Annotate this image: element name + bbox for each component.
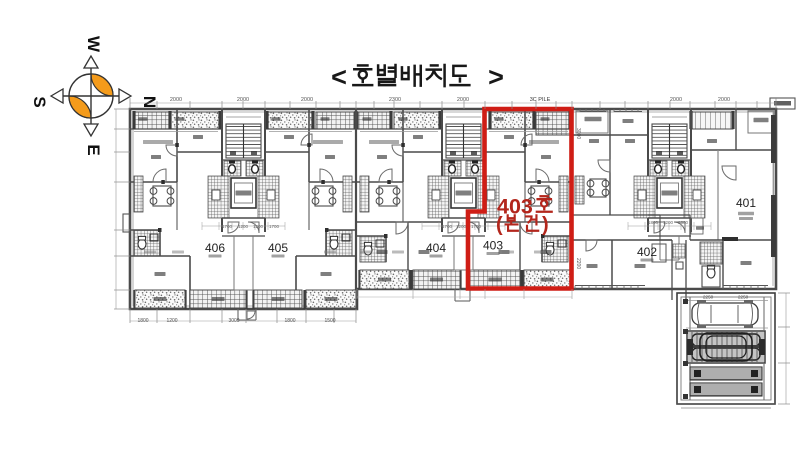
svg-text:402: 402: [637, 245, 657, 259]
svg-text:1500: 1500: [324, 318, 335, 324]
svg-text:1200: 1200: [238, 224, 249, 229]
svg-text:2000: 2000: [237, 97, 249, 103]
svg-text:): ): [542, 214, 549, 236]
svg-text:406: 406: [205, 241, 225, 255]
svg-text:404: 404: [426, 241, 446, 255]
svg-text:1800: 1800: [648, 220, 659, 225]
svg-text:405: 405: [268, 241, 288, 255]
svg-text:1700: 1700: [471, 224, 482, 229]
svg-text:N: N: [140, 96, 159, 108]
svg-text:>: >: [488, 62, 504, 92]
svg-text:1800: 1800: [137, 318, 148, 324]
svg-text:1700: 1700: [222, 224, 233, 229]
svg-text:2300: 2300: [389, 97, 401, 103]
svg-text:2000: 2000: [670, 97, 682, 103]
svg-text:403: 403: [483, 239, 503, 253]
svg-text:3C PILE: 3C PILE: [530, 97, 551, 103]
svg-text:2000: 2000: [457, 97, 469, 103]
svg-text:2250: 2250: [703, 295, 714, 300]
svg-text:1200: 1200: [166, 318, 177, 324]
svg-text:S: S: [30, 96, 49, 107]
svg-text:1700: 1700: [269, 224, 280, 229]
svg-text:1700: 1700: [442, 224, 453, 229]
svg-text:<: <: [331, 62, 347, 92]
svg-text:1800: 1800: [284, 318, 295, 324]
svg-text:2000: 2000: [718, 97, 730, 103]
svg-text:1200: 1200: [663, 220, 674, 225]
svg-text:2200: 2200: [575, 258, 581, 269]
svg-text:2000: 2000: [170, 97, 182, 103]
svg-text:1200: 1200: [456, 224, 467, 229]
svg-text:(: (: [496, 214, 503, 236]
svg-text:1800: 1800: [678, 220, 689, 225]
svg-text:E: E: [84, 144, 103, 155]
svg-text:3000: 3000: [228, 318, 239, 324]
svg-text:2000: 2000: [301, 97, 313, 103]
svg-text:W: W: [84, 36, 103, 53]
svg-text:401: 401: [736, 196, 756, 210]
svg-text:2250: 2250: [738, 295, 749, 300]
svg-text:3000: 3000: [575, 128, 581, 139]
svg-text:1200: 1200: [253, 224, 264, 229]
